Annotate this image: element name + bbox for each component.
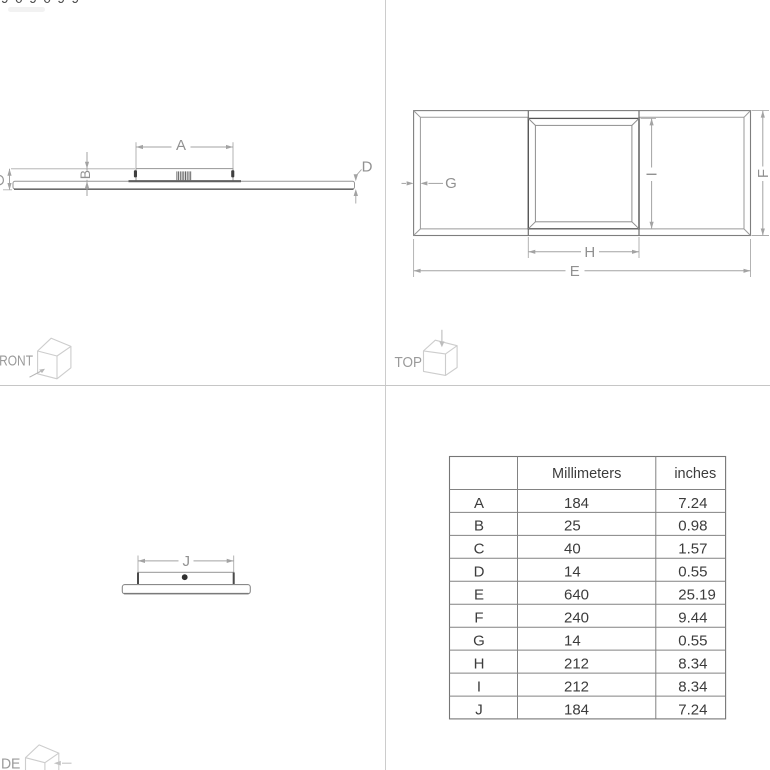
svg-text:0.55: 0.55 xyxy=(678,564,707,581)
svg-text:I: I xyxy=(644,172,661,176)
svg-text:B: B xyxy=(474,518,484,535)
svg-text:D: D xyxy=(474,564,485,581)
svg-text:B: B xyxy=(77,170,93,179)
svg-text:J: J xyxy=(182,553,190,570)
svg-text:I: I xyxy=(477,678,481,695)
svg-text:F: F xyxy=(755,169,770,178)
svg-text:TOP: TOP xyxy=(395,354,423,371)
svg-text:14: 14 xyxy=(564,564,581,581)
svg-text:1.57: 1.57 xyxy=(678,541,707,558)
svg-text:H: H xyxy=(584,244,595,261)
svg-text:E: E xyxy=(570,263,580,280)
svg-text:9.44: 9.44 xyxy=(678,610,707,627)
svg-text:Millimeters: Millimeters xyxy=(552,466,621,482)
svg-text:40: 40 xyxy=(564,541,581,558)
svg-text:7.24: 7.24 xyxy=(678,701,707,718)
svg-text:8.34: 8.34 xyxy=(678,655,707,672)
svg-text:H: H xyxy=(474,655,485,672)
svg-text:C: C xyxy=(474,541,485,558)
svg-text:A: A xyxy=(176,137,186,154)
svg-text:A: A xyxy=(474,495,484,512)
svg-text:inches: inches xyxy=(674,466,716,482)
svg-text:G: G xyxy=(445,175,457,192)
svg-text:640: 640 xyxy=(564,587,589,604)
svg-text:14: 14 xyxy=(564,633,581,650)
svg-text:240: 240 xyxy=(564,610,589,627)
svg-text:25: 25 xyxy=(564,518,581,535)
svg-text:184: 184 xyxy=(564,495,589,512)
svg-text:0.98: 0.98 xyxy=(678,518,707,535)
svg-text:212: 212 xyxy=(564,655,589,672)
svg-text:184: 184 xyxy=(564,701,589,718)
svg-text:25.19: 25.19 xyxy=(678,587,716,604)
svg-text:0.55: 0.55 xyxy=(678,633,707,650)
svg-text:E: E xyxy=(474,587,484,604)
svg-text:SIDE: SIDE xyxy=(0,755,20,770)
svg-text:F: F xyxy=(474,610,483,627)
svg-text:7.24: 7.24 xyxy=(678,495,707,512)
svg-text:J: J xyxy=(475,701,483,718)
svg-text:D: D xyxy=(362,159,373,176)
svg-text:FRONT: FRONT xyxy=(0,352,33,369)
svg-text:G: G xyxy=(473,633,485,650)
svg-text:8.34: 8.34 xyxy=(678,678,707,695)
svg-text:909099: 909099 xyxy=(1,0,86,6)
svg-text:212: 212 xyxy=(564,678,589,695)
